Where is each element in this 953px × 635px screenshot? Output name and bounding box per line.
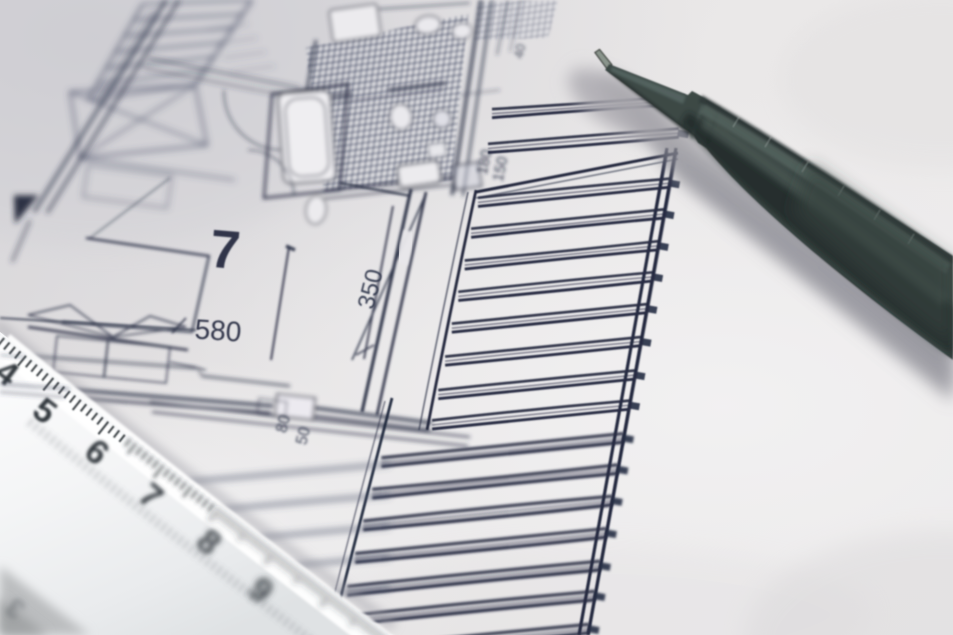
svg-text:580: 580	[194, 313, 243, 347]
svg-text:7: 7	[207, 219, 242, 281]
svg-text:350: 350	[353, 266, 389, 311]
svg-text:40: 40	[511, 42, 529, 59]
